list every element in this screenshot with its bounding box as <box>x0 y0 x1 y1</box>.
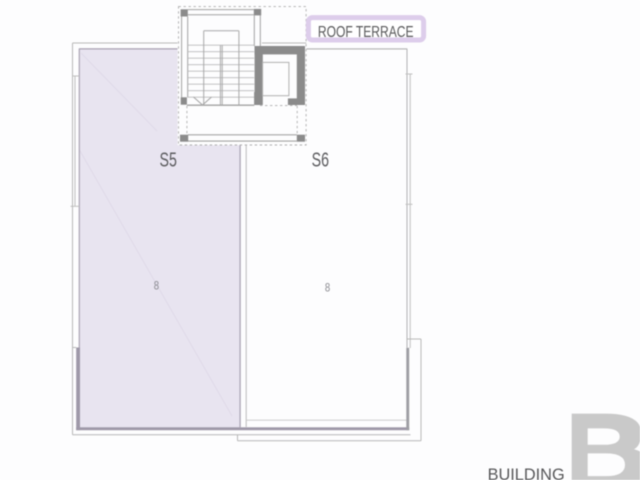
svg-text:S5: S5 <box>160 148 177 171</box>
svg-text:ROOF TERRACE: ROOF TERRACE <box>318 23 414 41</box>
svg-text:S6: S6 <box>312 148 329 171</box>
svg-text:8: 8 <box>154 280 159 293</box>
svg-text:8: 8 <box>325 281 330 294</box>
svg-text:BUILDING: BUILDING <box>488 465 565 480</box>
